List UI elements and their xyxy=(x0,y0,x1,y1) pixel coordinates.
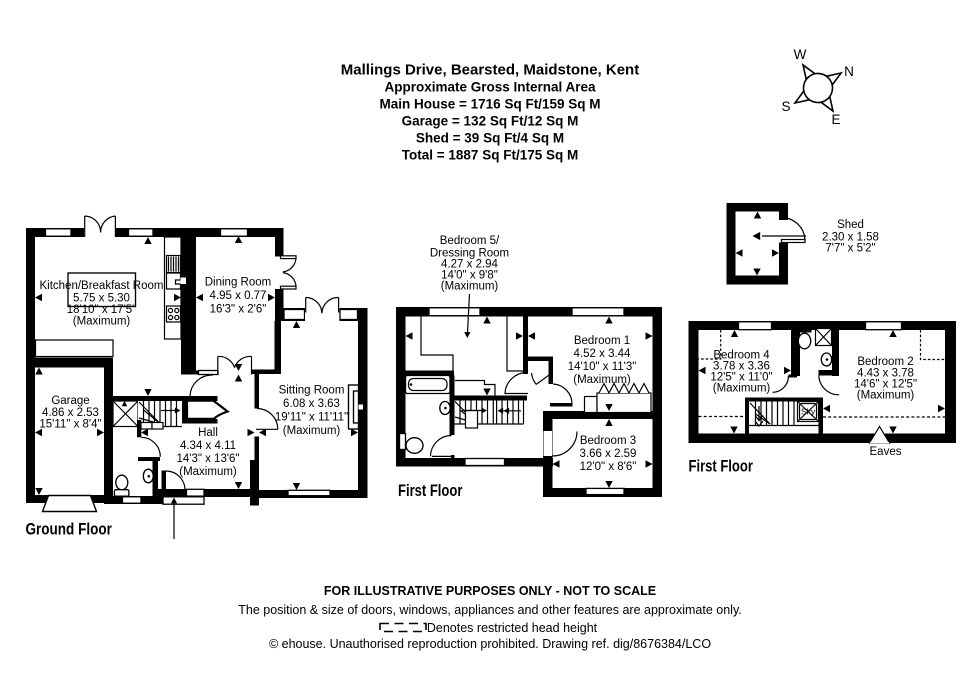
svg-text:Sitting Room: Sitting Room xyxy=(279,385,345,397)
svg-text:16'3" x 2'6": 16'3" x 2'6" xyxy=(210,304,267,316)
svg-text:E: E xyxy=(831,112,840,127)
svg-text:4.86 x 2.53: 4.86 x 2.53 xyxy=(42,407,99,419)
svg-text:Total = 1887 Sq Ft/175 Sq M: Total = 1887 Sq Ft/175 Sq M xyxy=(402,148,578,163)
svg-text:15'11" x 8'4": 15'11" x 8'4" xyxy=(39,419,101,431)
svg-text:Dining Room: Dining Room xyxy=(205,277,271,289)
svg-text:4.34 x 4.11: 4.34 x 4.11 xyxy=(180,440,236,452)
svg-text:Bedroom 5/: Bedroom 5/ xyxy=(440,235,500,247)
svg-text:19'11" x 11'11": 19'11" x 11'11" xyxy=(275,412,348,424)
svg-text:Eaves: Eaves xyxy=(870,446,902,458)
svg-text:S: S xyxy=(781,99,790,114)
svg-text:14'3" x 13'6": 14'3" x 13'6" xyxy=(176,453,239,465)
svg-text:4.52 x 3.44: 4.52 x 3.44 xyxy=(574,348,632,360)
svg-text:6.08 x 3.63: 6.08 x 3.63 xyxy=(283,398,340,410)
svg-text:(Maximum): (Maximum) xyxy=(73,316,131,328)
svg-text:Shed = 39 Sq Ft/4 Sq M: Shed = 39 Sq Ft/4 Sq M xyxy=(416,131,564,146)
svg-text:14'10" x 11'3": 14'10" x 11'3" xyxy=(568,361,637,373)
svg-text:FOR ILLUSTRATIVE PURPOSES ONLY: FOR ILLUSTRATIVE PURPOSES ONLY - NOT TO … xyxy=(324,584,656,598)
svg-text:Bedroom 3: Bedroom 3 xyxy=(580,435,636,447)
svg-text:Sky: Sky xyxy=(801,407,816,417)
svg-text:Approximate Gross Internal Are: Approximate Gross Internal Area xyxy=(384,80,596,95)
svg-text:First Floor: First Floor xyxy=(398,483,463,501)
svg-text:(Maximum): (Maximum) xyxy=(573,374,631,386)
svg-text:Shed: Shed xyxy=(837,219,864,231)
svg-text:Mallings Drive, Bearsted, Maid: Mallings Drive, Bearsted, Maidstone, Ken… xyxy=(341,62,639,79)
svg-text:Hall: Hall xyxy=(198,427,218,439)
svg-text:Garage = 132 Sq Ft/12 Sq M: Garage = 132 Sq Ft/12 Sq M xyxy=(402,114,579,129)
svg-text:5.75 x 5.30: 5.75 x 5.30 xyxy=(73,293,130,305)
svg-text:W: W xyxy=(794,47,807,62)
svg-text:4.95 x 0.77: 4.95 x 0.77 xyxy=(210,290,267,302)
svg-text:12'0" x 8'6": 12'0" x 8'6" xyxy=(580,461,637,473)
svg-text:First Floor: First Floor xyxy=(689,458,754,476)
svg-text:Main House = 1716 Sq Ft/159 Sq: Main House = 1716 Sq Ft/159 Sq M xyxy=(380,97,601,112)
svg-text:Denotes restricted head height: Denotes restricted head height xyxy=(427,621,598,635)
svg-text:Ground Floor: Ground Floor xyxy=(26,520,112,539)
svg-text:© ehouse. Unauthorised reprodu: © ehouse. Unauthorised reproduction proh… xyxy=(269,637,711,651)
svg-text:Kitchen/Breakfast Room: Kitchen/Breakfast Room xyxy=(39,280,163,292)
svg-text:(Maximum): (Maximum) xyxy=(441,281,499,293)
svg-text:The position & size of doors,: The position & size of doors, windows, a… xyxy=(238,603,742,617)
svg-text:(Maximum): (Maximum) xyxy=(283,425,341,437)
svg-text:(Maximum): (Maximum) xyxy=(179,466,237,478)
svg-text:18'10" x 17'5": 18'10" x 17'5" xyxy=(67,304,136,316)
svg-text:Garage: Garage xyxy=(51,395,89,407)
svg-text:3.66 x 2.59: 3.66 x 2.59 xyxy=(580,448,637,460)
svg-text:7'7" x 5'2": 7'7" x 5'2" xyxy=(825,243,875,255)
svg-text:Bedroom 2: Bedroom 2 xyxy=(857,356,913,368)
svg-text:(Maximum): (Maximum) xyxy=(713,383,771,395)
svg-text:N: N xyxy=(844,64,854,79)
svg-text:Bedroom 1: Bedroom 1 xyxy=(574,335,630,347)
svg-text:(Maximum): (Maximum) xyxy=(857,390,915,402)
